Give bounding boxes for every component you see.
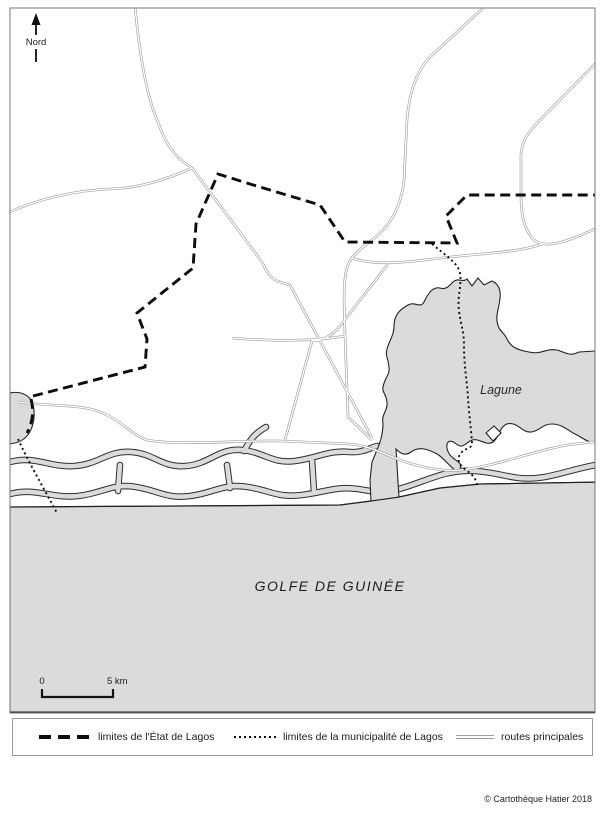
legend-label: limites de l'État de Lagos (98, 731, 214, 743)
legend-item-state-limits: limites de l'État de Lagos (39, 719, 214, 755)
lagoon-label: Lagune (480, 383, 522, 397)
legend-label: limites de la municipalité de Lagos (283, 731, 443, 743)
scale-end-label: 5 km (107, 676, 128, 687)
north-label: Nord (26, 37, 47, 48)
gulf-label: GOLFE DE GUINÉE (255, 578, 406, 594)
municipality-limit-line-icon (234, 736, 276, 739)
map-page: Nord Lagune GOLFE DE GUINÉE 0 5 km limit… (0, 0, 605, 820)
sea-shape (10, 482, 602, 712)
state-limit-line-icon (39, 735, 91, 739)
legend-box: limites de l'État de Lagos limites de la… (12, 718, 593, 756)
scale-start-label: 0 (39, 676, 44, 687)
municipality-boundary-line-west (18, 439, 57, 513)
main-road-line-icon (456, 735, 494, 739)
legend-label: routes principales (501, 731, 583, 743)
map-canvas: Nord Lagune GOLFE DE GUINÉE 0 5 km (0, 0, 605, 820)
legend-item-municipality-limits: limites de la municipalité de Lagos (234, 719, 443, 755)
legend-item-main-roads: routes principales (456, 719, 583, 755)
copyright-text: © Cartothèque Hatier 2018 (484, 794, 592, 804)
